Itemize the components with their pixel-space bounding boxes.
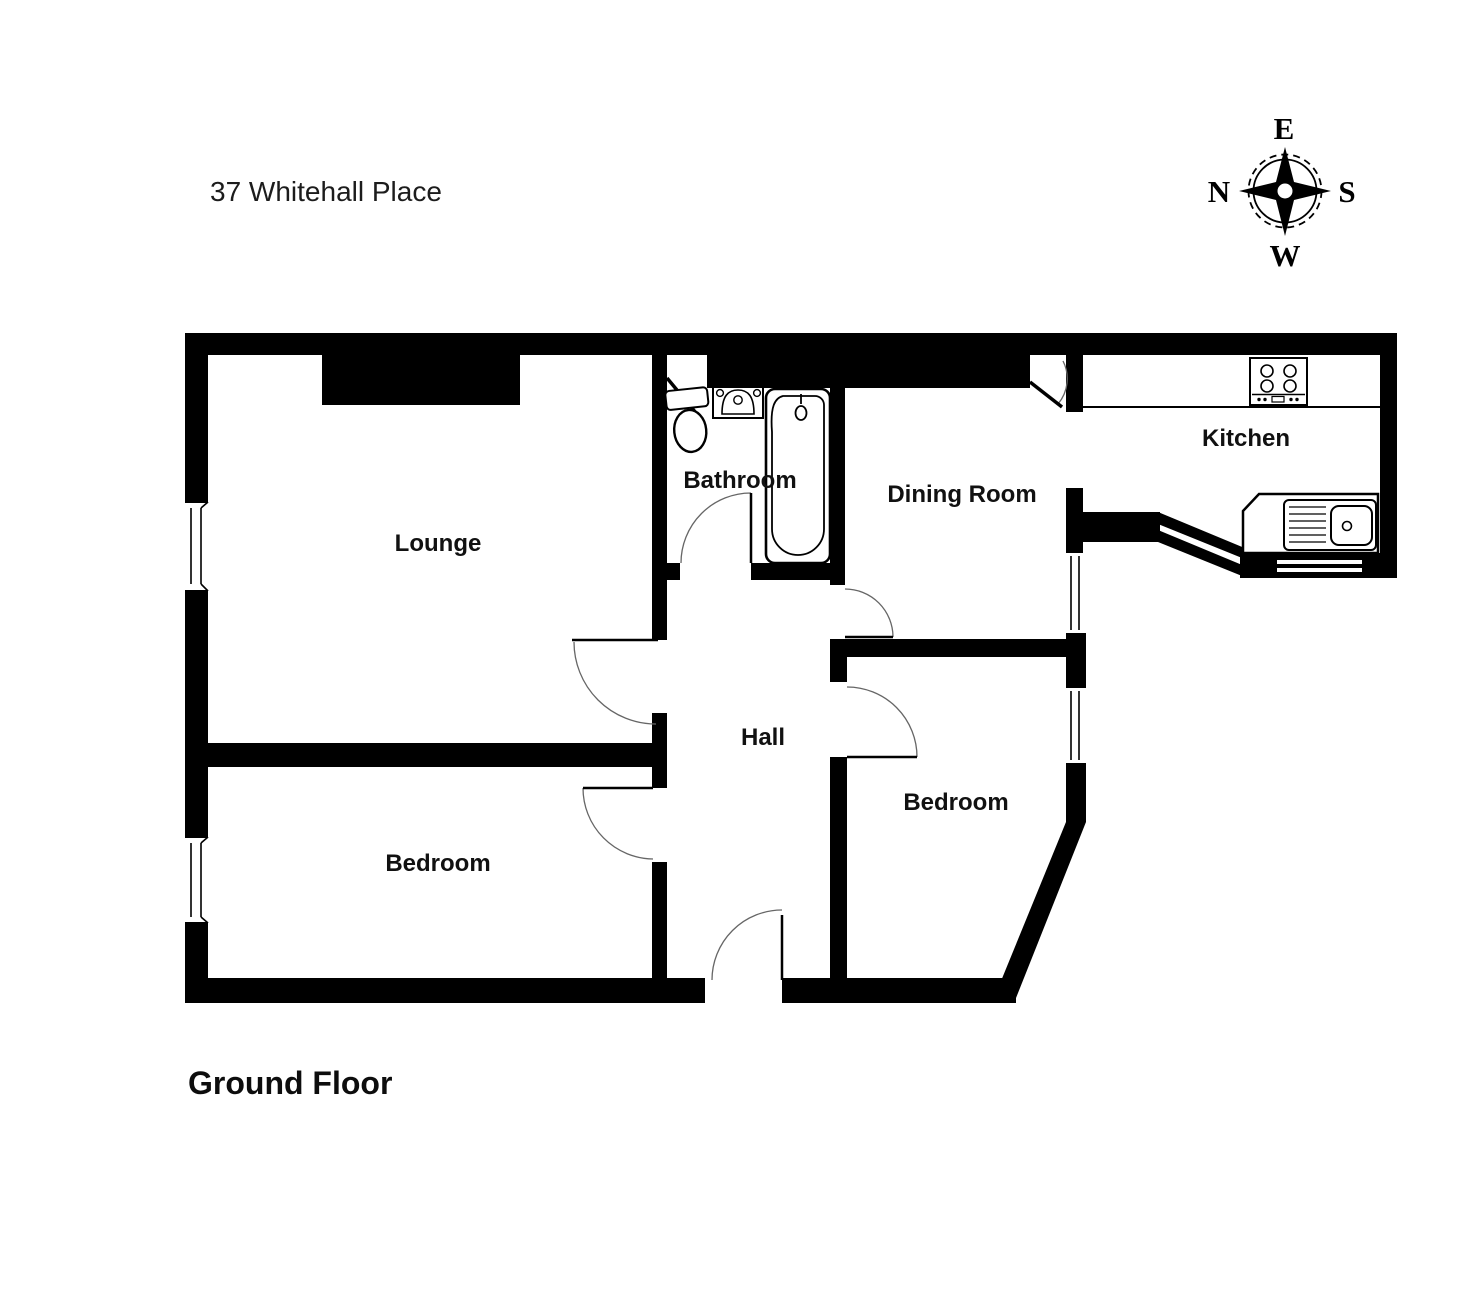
kitchen-sink-icon xyxy=(1243,494,1378,553)
wall-east-mid1 xyxy=(1066,488,1083,553)
window-opening xyxy=(185,838,208,922)
compass-hub-inner xyxy=(1278,184,1293,199)
wall-bedroom2-left-stub xyxy=(830,657,847,682)
wall-bedroom2-left xyxy=(830,757,847,982)
window-lounge xyxy=(185,502,208,591)
wall-east-top xyxy=(1066,355,1083,412)
room-label-bedroom-right: Bedroom xyxy=(903,789,1008,816)
basin-icon xyxy=(713,387,763,418)
wall-top xyxy=(185,333,1397,355)
window-bedroom-east xyxy=(1066,688,1086,763)
window-dining-east xyxy=(1066,553,1086,633)
wall-lounge-bedroom xyxy=(185,743,667,767)
wall-east-mid3 xyxy=(1066,763,1086,822)
compass-label-top: E xyxy=(1274,111,1295,146)
wall-bathroom-right xyxy=(830,355,845,585)
room-label-bedroom-left: Bedroom xyxy=(385,850,490,877)
compass-label-bottom: W xyxy=(1270,238,1301,273)
window-pane xyxy=(1277,568,1362,572)
floor-label: Ground Floor xyxy=(188,1065,392,1101)
room-label-bathroom: Bathroom xyxy=(683,467,796,494)
window-opening xyxy=(185,503,208,590)
wall-lounge-right-lower xyxy=(652,862,667,982)
wall-east-mid2 xyxy=(1066,633,1086,688)
room-label-kitchen: Kitchen xyxy=(1202,425,1290,452)
wall-lounge-chimney xyxy=(322,355,520,405)
page-title: 37 Whitehall Place xyxy=(210,176,442,207)
wall-bathroom-bottom-stub xyxy=(667,563,680,580)
room-label-dining-room: Dining Room xyxy=(887,481,1036,508)
room-label-lounge: Lounge xyxy=(395,530,482,557)
hob-icon xyxy=(1250,358,1307,405)
wall-bottom-right xyxy=(782,978,1016,1003)
wall-bottom-left xyxy=(185,978,705,1003)
floor-plan: 37 Whitehall Place E N S W xyxy=(0,0,1466,1292)
compass-label-left: N xyxy=(1208,174,1230,209)
wall-top-thick-band xyxy=(707,355,1030,388)
compass-label-right: S xyxy=(1338,174,1355,209)
floorplan-page: 37 Whitehall Place E N S W xyxy=(0,0,1466,1292)
window-pane xyxy=(1277,560,1362,564)
window-bedroom-left xyxy=(185,837,208,923)
wall-kitchen-lower-left xyxy=(1083,512,1160,542)
window-opening xyxy=(1066,688,1086,763)
window-opening xyxy=(1066,553,1086,633)
room-label-hall: Hall xyxy=(741,724,785,751)
wall-dining-bedroom xyxy=(830,639,1086,657)
wall-kitchen-bottom xyxy=(1240,553,1397,578)
wall-kitchen-right xyxy=(1380,333,1397,578)
